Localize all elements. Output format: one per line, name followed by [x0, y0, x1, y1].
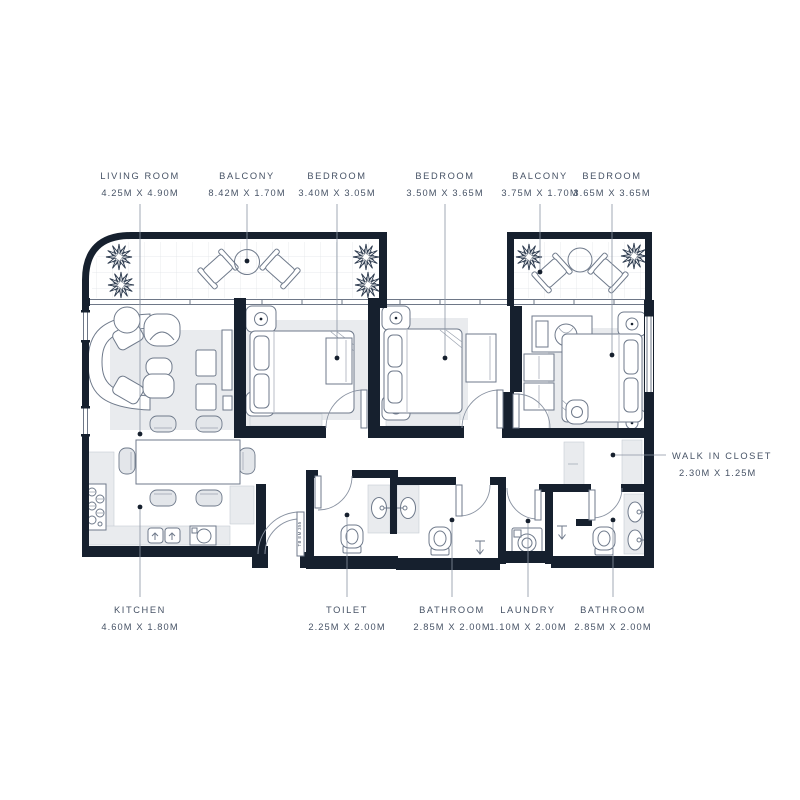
bath1-laundry-wall: [498, 484, 506, 564]
svg-text:3.65M X 3.65M: 3.65M X 3.65M: [573, 188, 650, 198]
nightstand-icon: [618, 312, 646, 336]
dresser-icon: [466, 334, 496, 382]
room-label-bathroom-1: BATHROOM 2.85M X 2.00M: [413, 605, 490, 632]
dining-chair-icon: [119, 448, 135, 474]
bath1-top-wall: [390, 477, 456, 485]
svg-text:BALCONY: BALCONY: [512, 171, 568, 181]
bath2-bottom-wall: [551, 556, 654, 568]
bed1-bottom-wall: [234, 426, 326, 438]
room-label-walk-in-closet: WALK IN CLOSET 2.30M X 1.25M: [672, 451, 772, 478]
entry-door-tag: TB EM 355: [297, 521, 302, 546]
dining-chair-icon: [239, 448, 255, 474]
door-swing-icon: [589, 488, 622, 520]
dining-table-icon: [136, 440, 240, 484]
wall-living-bed1: [234, 306, 246, 438]
dining-chair-icon: [150, 416, 176, 432]
svg-text:3.75M X 1.70M: 3.75M X 1.70M: [501, 188, 578, 198]
toilet-bottom-wall: [306, 556, 398, 569]
toilet-icon: [593, 527, 615, 555]
room-label-toilet: TOILET 2.25M X 2.00M: [308, 605, 385, 632]
svg-text:LAUNDRY: LAUNDRY: [500, 605, 555, 615]
svg-text:BEDROOM: BEDROOM: [307, 171, 366, 181]
svg-text:BATHROOM: BATHROOM: [580, 605, 646, 615]
toilet-icon: [341, 525, 363, 553]
floor-plan-page: TB EM 355 LIVING ROOM 4.25M X 4.90M BALC…: [0, 0, 800, 800]
svg-text:3.40M X 3.05M: 3.40M X 3.05M: [298, 188, 375, 198]
room-label-laundry: LAUNDRY 1.10M X 2.00M: [489, 605, 566, 632]
tv-console: [222, 330, 232, 390]
svg-text:KITCHEN: KITCHEN: [114, 605, 166, 615]
room-label-bedroom-1: BEDROOM 3.40M X 3.05M: [298, 171, 375, 198]
svg-text:4.60M X 1.80M: 4.60M X 1.80M: [101, 622, 178, 632]
door-swing-icon: [315, 476, 352, 510]
shower-drain-icon: [475, 541, 485, 554]
room-label-kitchen: KITCHEN 4.60M X 1.80M: [101, 605, 178, 632]
room-label-balcony-1: BALCONY 8.42M X 1.70M: [208, 171, 285, 198]
floor-plan: TB EM 355 LIVING ROOM 4.25M X 4.90M BALC…: [0, 0, 800, 800]
room-label-bathroom-2: BATHROOM 2.85M X 2.00M: [574, 605, 651, 632]
bed-icon: [384, 329, 462, 413]
bed3-bottom-wall: [512, 428, 652, 438]
room-label-living-room: LIVING ROOM 4.25M X 4.90M: [100, 171, 180, 198]
wall-bed1-bed2: [368, 306, 380, 438]
kitchen-bottom-wall: [82, 546, 268, 557]
svg-text:3.50M X 3.65M: 3.50M X 3.65M: [406, 188, 483, 198]
stool-icon: [566, 400, 588, 424]
dining-chair-icon: [150, 490, 176, 506]
wic-wardrobe-right: [622, 440, 642, 488]
svg-text:BEDROOM: BEDROOM: [415, 171, 474, 181]
door-swing-icon: [462, 390, 503, 428]
svg-text:1.10M X 2.00M: 1.10M X 2.00M: [489, 622, 566, 632]
balcony-1: [92, 242, 381, 298]
svg-text:BALCONY: BALCONY: [219, 171, 275, 181]
side-table-icon: [196, 350, 216, 376]
laundry-bottom-wall: [498, 551, 553, 563]
toilet-icon: [429, 527, 451, 555]
svg-text:2.85M X 2.00M: 2.85M X 2.00M: [413, 622, 490, 632]
living-room: [88, 307, 232, 410]
plumbing-wall: [390, 477, 397, 534]
room-label-balcony-2: BALCONY 3.75M X 1.70M: [501, 171, 578, 198]
dining-chair-icon: [196, 490, 222, 506]
svg-text:8.42M X 1.70M: 8.42M X 1.70M: [208, 188, 285, 198]
door-swing-icon: [507, 488, 541, 520]
svg-text:2.30M X 1.25M: 2.30M X 1.25M: [679, 468, 756, 478]
shower-drain-icon: [557, 526, 567, 539]
nightstand-icon: [382, 306, 410, 330]
svg-text:2.85M X 2.00M: 2.85M X 2.00M: [574, 622, 651, 632]
media-unit: [223, 396, 232, 410]
bath2-top-wall: [553, 484, 591, 492]
svg-text:2.25M X 2.00M: 2.25M X 2.00M: [308, 622, 385, 632]
svg-text:BEDROOM: BEDROOM: [582, 171, 641, 181]
room-label-bedroom-2: BEDROOM 3.50M X 3.65M: [406, 171, 483, 198]
room-label-bedroom-3: BEDROOM 3.65M X 3.65M: [573, 171, 650, 198]
fridge: [230, 486, 254, 524]
door-swing-icon: [456, 485, 490, 516]
dishwasher-icon: [190, 526, 216, 545]
nightstand-icon: [246, 306, 276, 332]
toilet-left-wall: [306, 470, 314, 560]
bed2-bottom-wall: [368, 426, 464, 438]
bath1-bottom-wall: [396, 558, 500, 570]
bedroom-3: [524, 312, 646, 436]
svg-text:LIVING ROOM: LIVING ROOM: [100, 171, 180, 181]
svg-text:TOILET: TOILET: [326, 605, 368, 615]
side-table-icon: [196, 384, 216, 410]
toilet-top-wall: [352, 470, 398, 478]
svg-text:BATHROOM: BATHROOM: [419, 605, 485, 615]
svg-text:WALK IN CLOSET: WALK IN CLOSET: [672, 451, 772, 461]
laundry-bath2-wall: [545, 484, 553, 564]
dresser-icon: [326, 338, 352, 384]
balcony-2: [514, 242, 647, 298]
lounge-chair-icon: [143, 358, 174, 398]
dining-chair-icon: [196, 416, 222, 432]
window-band: [86, 300, 648, 305]
armchair-icon: [144, 314, 180, 346]
svg-text:4.25M X 4.90M: 4.25M X 4.90M: [101, 188, 178, 198]
side-table-icon: [114, 307, 140, 333]
wall-bed2-bed3: [510, 306, 522, 392]
